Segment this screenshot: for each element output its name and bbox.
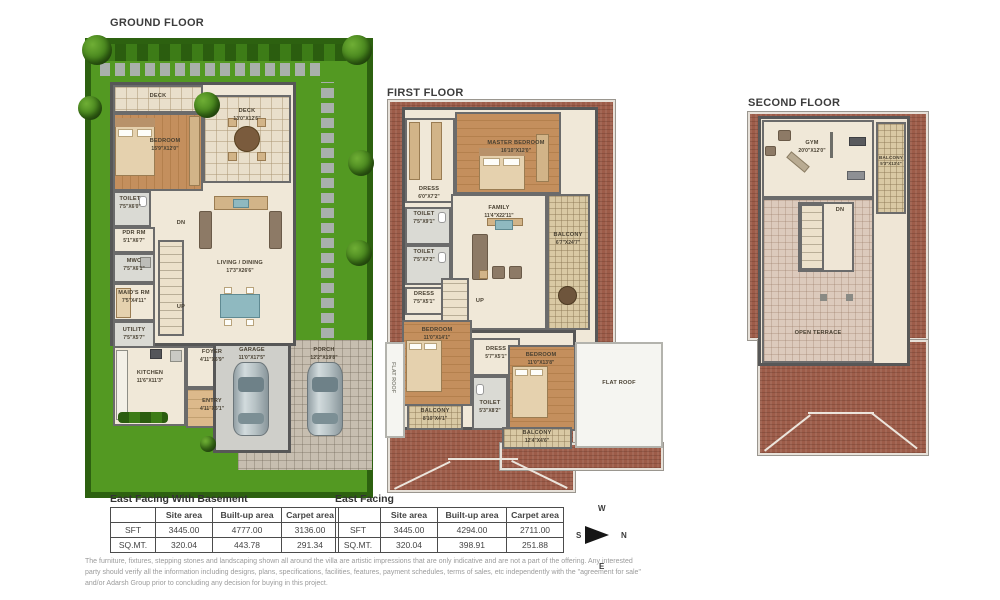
label-bedroom2: BEDROOM11'0"X14'1"	[422, 327, 453, 341]
label-entry: ENTRY4'11"X5'1"	[200, 398, 224, 412]
second-floor-title: SECOND FLOOR	[748, 97, 840, 109]
label-deck-top: DECK	[150, 93, 167, 101]
room-dims-text: 12'2"X19'8"	[310, 355, 337, 362]
room-dims-text: 16'10"X12'0"	[487, 148, 544, 155]
deck-chair-icon	[228, 152, 237, 161]
fridge-icon	[170, 350, 182, 362]
room-dims-text: 17'3"X26'6"	[217, 268, 263, 275]
label-mwc: MWC7'5"X6'1"	[123, 258, 145, 272]
room-name-text: GARAGE	[239, 347, 266, 355]
deck-chair-icon	[257, 152, 266, 161]
room-name-text: DN	[177, 220, 185, 228]
room-dims-text: 4'11"X5'1"	[200, 406, 224, 413]
label-pdr: PDR RM5'1"X6'7"	[122, 230, 145, 244]
pillow-icon	[137, 129, 152, 137]
dining-chair-icon	[246, 319, 254, 326]
first-floor-title: FIRST FLOOR	[387, 87, 464, 99]
room-dims-text: 5'7"X5'1"	[485, 354, 507, 361]
room-name-text: DRESS	[413, 291, 435, 299]
dining-chair-icon	[224, 287, 232, 294]
label-ground-toilet: TOILET7'5"X6'0"	[119, 196, 141, 210]
room-name-text: BALCONY	[420, 408, 449, 416]
label-ground-dn: DN	[177, 220, 185, 228]
room-dims-text: 15'9"X12'0"	[150, 146, 181, 153]
cell: SQ.MT.	[111, 538, 156, 553]
terrace-pillar	[846, 294, 853, 301]
room-name-text: GYM	[798, 140, 825, 148]
treadmill-icon	[849, 137, 866, 146]
room-dims-text: 5'1"X6'7"	[122, 238, 145, 245]
header-cell: Carpet area	[507, 508, 564, 523]
label-garage: GARAGE11'0"X17'5"	[239, 347, 266, 361]
sofa-icon	[269, 211, 282, 249]
pillow-icon	[409, 343, 422, 350]
label-ground-up: UP	[177, 304, 185, 312]
room-dims-text: 11'0"X14'1"	[422, 335, 453, 342]
car-icon	[233, 362, 269, 436]
room-dims-text: 7'5"X5'7"	[123, 335, 146, 342]
pillow-icon	[424, 343, 437, 350]
room-dims-text: 4'11"X6'9"	[200, 357, 224, 364]
label-flat-roof-right: FLAT ROOF	[602, 380, 635, 388]
room-name-text: TOILET	[119, 196, 141, 204]
room-name-text: KITCHEN	[137, 370, 164, 378]
area-table-east: Site area Built-up area Carpet area SFT …	[335, 507, 564, 553]
compass-arrow-icon	[585, 526, 609, 544]
room-name-text: FOYER	[200, 349, 224, 357]
room-name-text: BALCONY	[553, 232, 582, 240]
tree-icon	[194, 92, 220, 118]
cell: SQ.MT.	[336, 538, 381, 553]
room-dims-text: 5'3"X13'4"	[879, 161, 903, 167]
armchair-icon	[492, 266, 505, 279]
table-title-east: East Facing	[335, 493, 394, 505]
pillow-icon	[503, 158, 520, 166]
room-name-text: BALCONY	[522, 430, 551, 438]
planter-box	[118, 412, 168, 423]
room-dims-text: 6'7"X24'7"	[553, 240, 582, 247]
cell: 3445.00	[156, 523, 213, 538]
room-name-text: DECK	[233, 108, 260, 116]
cell: 443.78	[213, 538, 282, 553]
terrace-pillar	[820, 294, 827, 301]
room-dims-text: 7'5"X5'1"	[413, 299, 435, 306]
room-balcony1	[547, 194, 590, 330]
ground-floor-title: GROUND FLOOR	[110, 17, 204, 29]
room-dims-text: 11'0"X17'5"	[239, 355, 266, 362]
wardrobe-icon	[431, 122, 442, 180]
room-name-text: MASTER BEDROOM	[487, 140, 544, 148]
car-icon	[307, 362, 343, 436]
tree-icon	[78, 96, 102, 120]
dining-chair-icon	[224, 319, 232, 326]
stepping-stones-row	[100, 63, 320, 76]
room-name-text: ENTRY	[200, 398, 224, 406]
label-dress1: DRESS6'0"X7'2"	[418, 186, 440, 200]
room-name-text: DN	[836, 207, 844, 215]
label-bedroom3: BEDROOM11'0"X13'8"	[526, 352, 557, 366]
room-dims-text: 7'5"X6'0"	[119, 204, 141, 211]
label-balcony2: BALCONY8'10"X4'1"	[420, 408, 449, 422]
stove-icon	[150, 349, 162, 359]
table-header-row: Site area Built-up area Carpet area	[111, 508, 339, 523]
room-dims-text: 11'6"X11'3"	[137, 378, 164, 385]
pillow-icon	[118, 129, 133, 137]
wc-icon	[438, 252, 446, 263]
label-dress3: DRESS5'7"X5'1"	[485, 346, 507, 360]
tree-icon	[82, 35, 112, 65]
roof-ridge	[808, 412, 874, 414]
label-utility: UTILITY7'5"X5'7"	[123, 327, 146, 341]
label-maids: MAID'S RM7'5"X4'11"	[118, 290, 149, 304]
room-name-text: UP	[476, 298, 484, 306]
label-master: MASTER BEDROOM16'10"X12'0"	[487, 140, 544, 154]
cell: 2711.00	[507, 523, 564, 538]
room-name-text: FLAT ROOF	[602, 380, 635, 388]
cell: SFT	[111, 523, 156, 538]
room-dims-text: 7'5"X6'1"	[123, 266, 145, 273]
cell: SFT	[336, 523, 381, 538]
header-cell	[336, 508, 381, 523]
disclaimer-text: The furniture, fixtures, stepping stones…	[85, 556, 641, 590]
sofa-icon	[199, 211, 212, 249]
room-name-text: MWC	[123, 258, 145, 266]
coffee-table-icon	[479, 270, 488, 279]
gym-pole-icon	[830, 132, 833, 158]
table-row: SFT 3445.00 4294.00 2711.00	[336, 523, 564, 538]
room-name-text: DRESS	[418, 186, 440, 194]
wc-icon	[476, 384, 484, 395]
label-family: FAMILY11'4"X22'11"	[484, 205, 513, 219]
label-second-dn: DN	[836, 207, 844, 215]
label-terrace: OPEN TERRACE	[795, 330, 842, 338]
room-name-text: BEDROOM	[526, 352, 557, 360]
cell: 320.04	[381, 538, 438, 553]
room-dims-text: 6'0"X7'2"	[418, 194, 440, 201]
room-name-text: PDR RM	[122, 230, 145, 238]
pillow-icon	[483, 158, 500, 166]
second-stairs	[800, 204, 824, 270]
cell: 251.88	[507, 538, 564, 553]
hedge-row	[93, 44, 365, 61]
label-ground-bedroom: BEDROOM15'9"X12'0"	[150, 138, 181, 152]
area-table-basement: Site area Built-up area Carpet area SFT …	[110, 507, 339, 553]
floor-plan-sheet: GROUND FLOOR DECK	[0, 0, 1000, 600]
label-dress2: DRESS7'5"X5'1"	[413, 291, 435, 305]
cell: 291.34	[282, 538, 339, 553]
room-name-text: UTILITY	[123, 327, 146, 335]
room-name-text: BEDROOM	[150, 138, 181, 146]
room-name-text: TOILET	[413, 211, 435, 219]
compass-north-label: N	[621, 531, 627, 540]
label-second-balcony: BALCONY5'3"X13'4"	[879, 155, 903, 167]
room-name-text: DECK	[150, 93, 167, 101]
label-flat-roof-left: FLAT ROOF	[390, 362, 396, 393]
flat-roof-right	[575, 342, 663, 448]
room-name-text: LIVING / DINING	[217, 260, 263, 268]
room-dims-text: 8'10"X4'1"	[420, 416, 449, 423]
room-dims-text: 13'0"X12'6"	[233, 116, 260, 123]
room-dims-text: 20'0"X12'0"	[798, 148, 825, 155]
header-cell: Site area	[381, 508, 438, 523]
tree-icon	[346, 240, 372, 266]
label-deck-main: DECK13'0"X12'6"	[233, 108, 260, 122]
compass-south-label: S	[576, 531, 581, 540]
table-title-basement: East Facing With Basement	[110, 493, 248, 505]
room-second-balcony	[876, 122, 906, 214]
header-cell	[111, 508, 156, 523]
dining-table-icon	[220, 294, 260, 318]
pillow-icon	[515, 369, 528, 376]
cell: 320.04	[156, 538, 213, 553]
label-balcony1: BALCONY6'7"X24'7"	[553, 232, 582, 246]
header-cell: Site area	[156, 508, 213, 523]
label-gym: GYM20'0"X12'0"	[798, 140, 825, 154]
room-dims-text: 7'5"X4'11"	[118, 298, 149, 305]
label-toilet2: TOILET7'5"X7'2"	[413, 249, 435, 263]
bush-icon	[200, 436, 216, 452]
dining-chair-icon	[246, 287, 254, 294]
room-name-text: UP	[177, 304, 185, 312]
header-cell: Built-up area	[213, 508, 282, 523]
label-toilet1: TOILET7'5"X9'1"	[413, 211, 435, 225]
label-first-up: UP	[476, 298, 484, 306]
armchair-icon	[509, 266, 522, 279]
wc-icon	[438, 212, 446, 223]
room-name-text: PORCH	[310, 347, 337, 355]
room-dims-text: 12'4"X4'6"	[522, 438, 551, 445]
wardrobe-icon	[409, 122, 420, 180]
label-porch: PORCH12'2"X19'8"	[310, 347, 337, 361]
table-row: SFT 3445.00 4777.00 3136.00	[111, 523, 339, 538]
label-foyer: FOYER4'11"X6'9"	[200, 349, 224, 363]
pillow-icon	[530, 369, 543, 376]
tree-icon	[342, 35, 372, 65]
compass-west-label: W	[598, 504, 606, 513]
table-row: SQ.MT. 320.04 398.91 251.88	[336, 538, 564, 553]
room-name-text: TOILET	[479, 400, 501, 408]
room-name-text: DRESS	[485, 346, 507, 354]
wardrobe-icon	[189, 116, 200, 186]
tv-icon	[495, 220, 513, 230]
table-row: SQ.MT. 320.04 443.78 291.34	[111, 538, 339, 553]
room-name-text: BEDROOM	[422, 327, 453, 335]
bed-headboard	[115, 118, 155, 127]
cell: 3136.00	[282, 523, 339, 538]
balcony-table-icon	[558, 286, 577, 305]
label-balcony3: BALCONY12'4"X4'6"	[522, 430, 551, 444]
room-name-text: FAMILY	[484, 205, 513, 213]
cell: 4777.00	[213, 523, 282, 538]
cell: 4294.00	[438, 523, 507, 538]
room-dims-text: 5'3"X8'2"	[479, 408, 501, 415]
label-living: LIVING / DINING17'3"X26'6"	[217, 260, 263, 274]
tv-icon	[233, 199, 249, 208]
label-kitchen: KITCHEN11'6"X11'3"	[137, 370, 164, 384]
room-dims-text: 7'5"X7'2"	[413, 257, 435, 264]
room-name-text: OPEN TERRACE	[795, 330, 842, 338]
treadmill-icon	[847, 171, 865, 180]
ground-stairs	[158, 240, 184, 336]
room-name-text: MAID'S RM	[118, 290, 149, 298]
label-toilet3: TOILET5'3"X8'2"	[479, 400, 501, 414]
gym-bench-icon	[778, 130, 791, 141]
cell: 398.91	[438, 538, 507, 553]
deck-table-icon	[234, 126, 260, 152]
header-cell: Built-up area	[438, 508, 507, 523]
cell: 3445.00	[381, 523, 438, 538]
room-dims-text: 11'0"X13'8"	[526, 360, 557, 367]
stepping-stones-column	[321, 82, 334, 338]
tree-icon	[348, 150, 374, 176]
header-cell: Carpet area	[282, 508, 339, 523]
table-header-row: Site area Built-up area Carpet area	[336, 508, 564, 523]
gym-bench-icon	[765, 146, 776, 156]
room-dims-text: 7'5"X9'1"	[413, 219, 435, 226]
room-name-text: TOILET	[413, 249, 435, 257]
kitchen-counter	[116, 350, 128, 420]
room-dims-text: 11'4"X22'11"	[484, 213, 513, 220]
roof-ridge	[448, 458, 518, 460]
